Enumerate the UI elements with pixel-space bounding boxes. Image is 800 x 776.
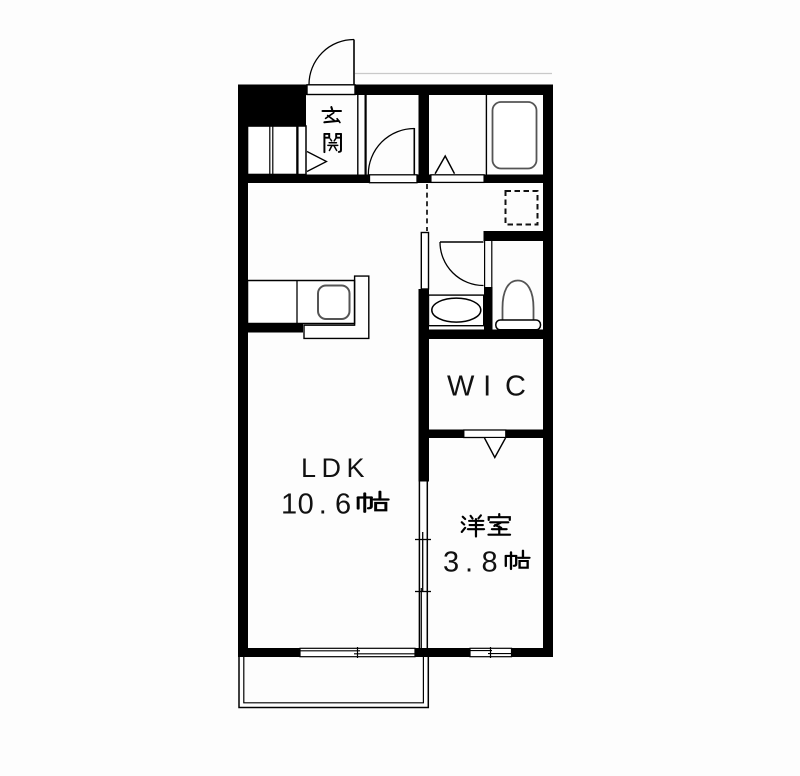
svg-text:1: 1 xyxy=(281,489,297,521)
svg-text:8: 8 xyxy=(482,547,498,579)
svg-text:0: 0 xyxy=(298,489,314,521)
svg-text:.: . xyxy=(319,489,327,521)
svg-text:W: W xyxy=(447,371,475,403)
svg-text:.: . xyxy=(465,547,473,579)
svg-text:D: D xyxy=(322,453,342,483)
svg-text:I: I xyxy=(483,371,491,403)
svg-text:6: 6 xyxy=(335,489,351,521)
svg-text:3: 3 xyxy=(443,547,459,579)
svg-text:L: L xyxy=(301,453,316,483)
svg-text:C: C xyxy=(505,371,526,403)
svg-text:K: K xyxy=(347,453,365,483)
